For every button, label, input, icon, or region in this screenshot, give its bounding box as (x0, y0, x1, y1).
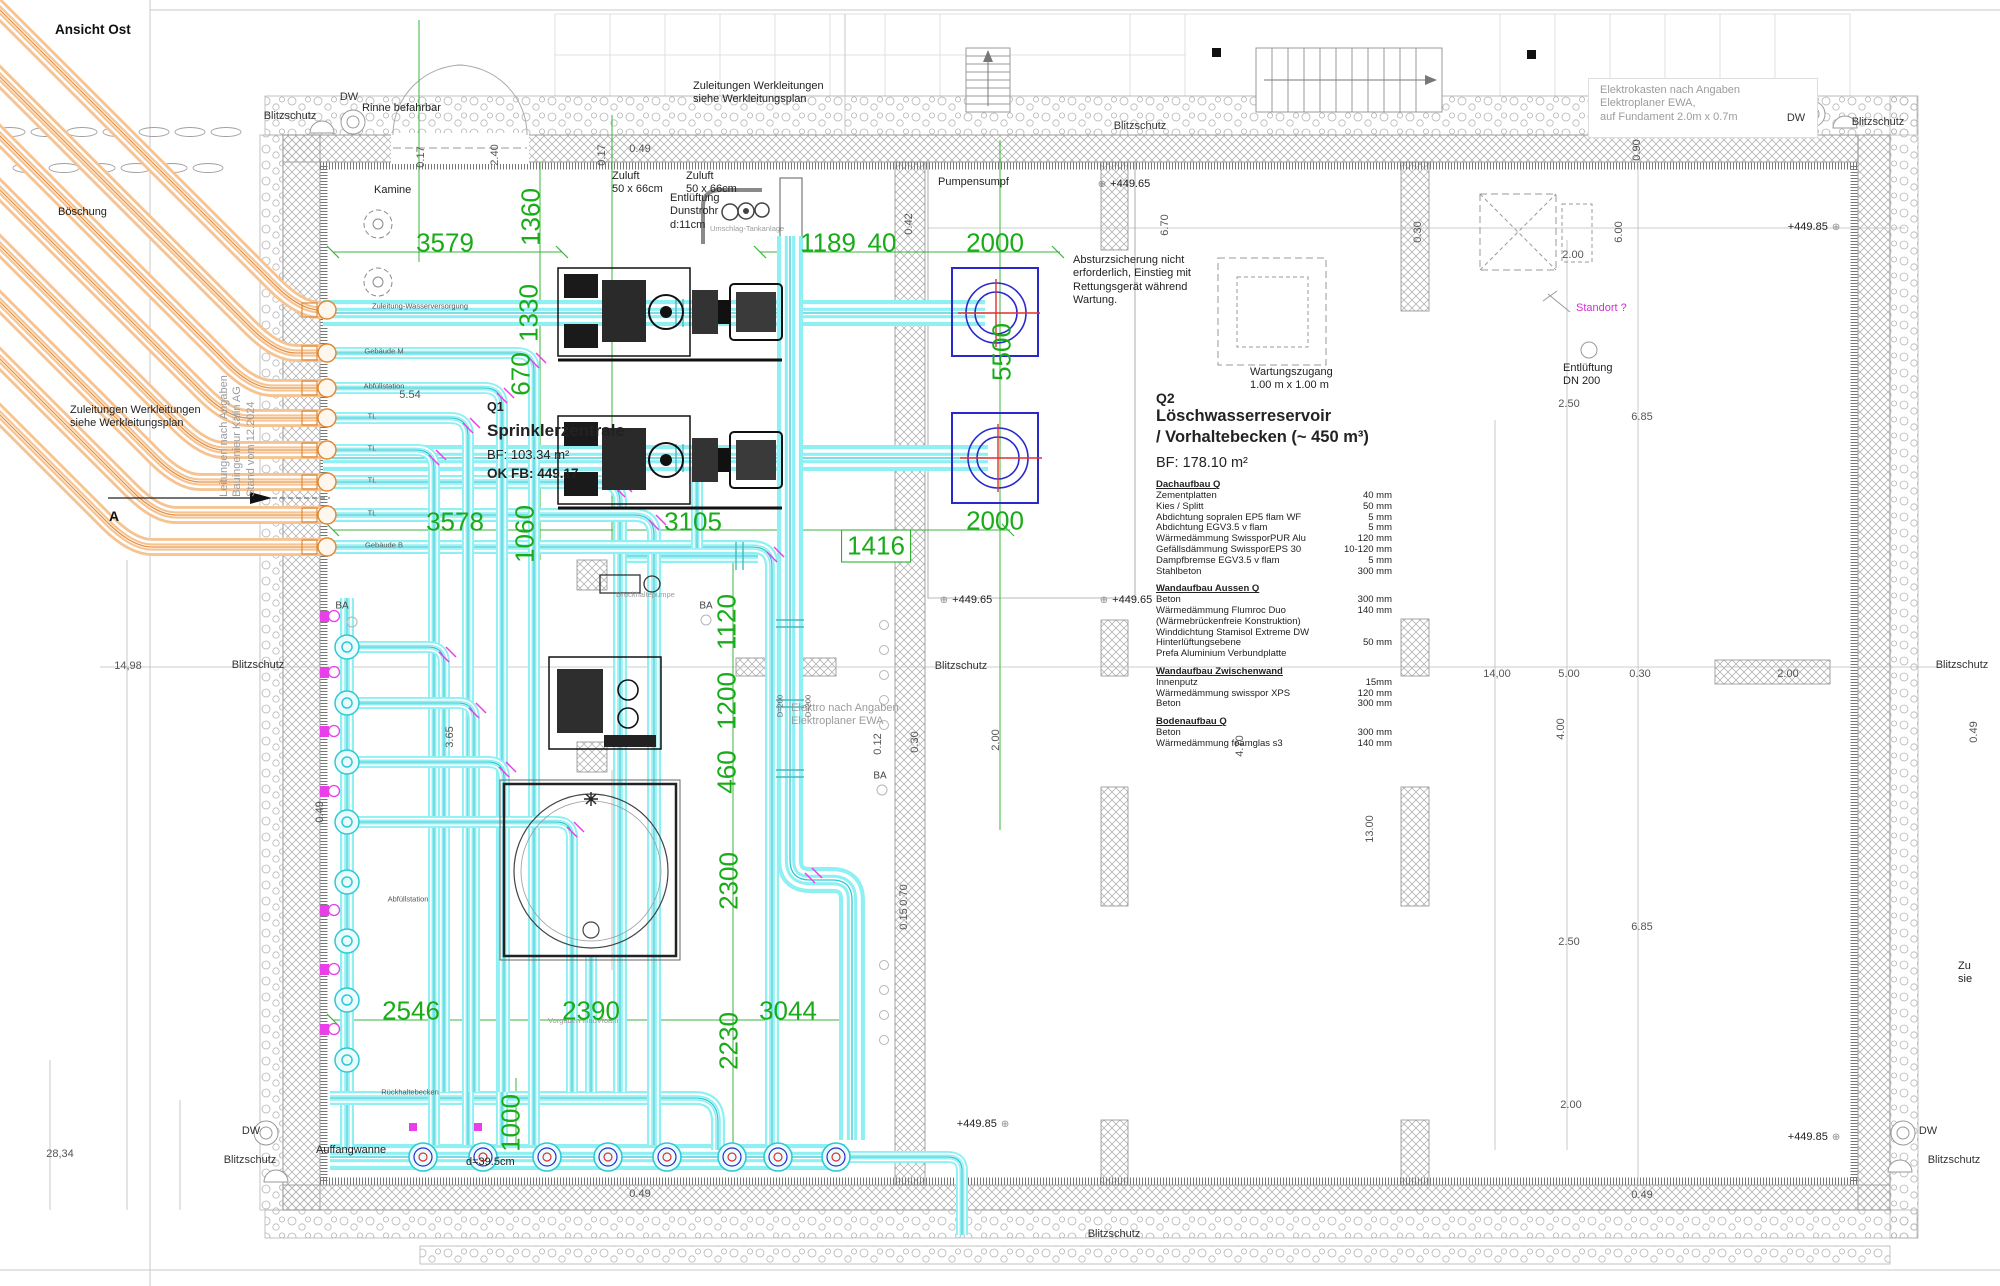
spec-row: Innenputz15mm (1156, 678, 1392, 689)
q1-name: Sprinklerzentrale (487, 421, 625, 441)
q2-construction-specs: Dachaufbau QZementplatten40 mmKies / Spl… (1156, 480, 1392, 749)
q2-code: Q2 (1156, 390, 1392, 406)
note-card (1588, 78, 1818, 138)
spec-row: (Wärmebrückenfreie Konstruktion) (1156, 617, 1392, 628)
room-q2-label: Q2 Löschwasserreservoir / Vorhaltebecken… (1156, 390, 1392, 750)
q1-code: Q1 (487, 400, 625, 414)
q2-area: BF: 178.10 m² (1156, 455, 1392, 471)
q2-title-line1: Löschwasserreservoir (1156, 406, 1392, 427)
misc-symbols (1543, 291, 1597, 358)
q1-area: BF: 103.34 m² (487, 447, 625, 462)
floor-plan-sheet: Ansicht Ost Q1 Sprinklerzentrale BF: 103… (0, 0, 2000, 1286)
spec-row: Wärmedämmung foamglas s3140 mm (1156, 739, 1392, 750)
spec-row: Prefa Aluminium Verbundplatte (1156, 649, 1392, 660)
spec-row: Dampfbremse EGV3.5 v flam5 mm (1156, 556, 1392, 567)
spec-section-heading: Bodenaufbau Q (1156, 717, 1392, 728)
equipment-unit (549, 575, 661, 749)
spec-section-heading: Wandaufbau Aussen Q (1156, 584, 1392, 595)
view-title: Ansicht Ost (55, 22, 131, 37)
q2-title-line2: / Vorhaltebecken (~ 450 m³) (1156, 427, 1392, 448)
drawing-canvas (0, 0, 2000, 1286)
spec-row: Beton300 mm (1156, 699, 1392, 710)
reference-lines (100, 14, 1960, 1185)
room-q1-label: Q1 Sprinklerzentrale BF: 103.34 m² OK FB… (487, 400, 625, 481)
wall (283, 135, 1890, 1210)
spec-row: Stahlbeton300 mm (1156, 567, 1392, 578)
q1-floor-level: OK FB: 449.17 (487, 466, 625, 481)
spec-row: Wärmedämmung swisspor XPS120 mm (1156, 689, 1392, 700)
chimney-symbol (364, 210, 392, 296)
